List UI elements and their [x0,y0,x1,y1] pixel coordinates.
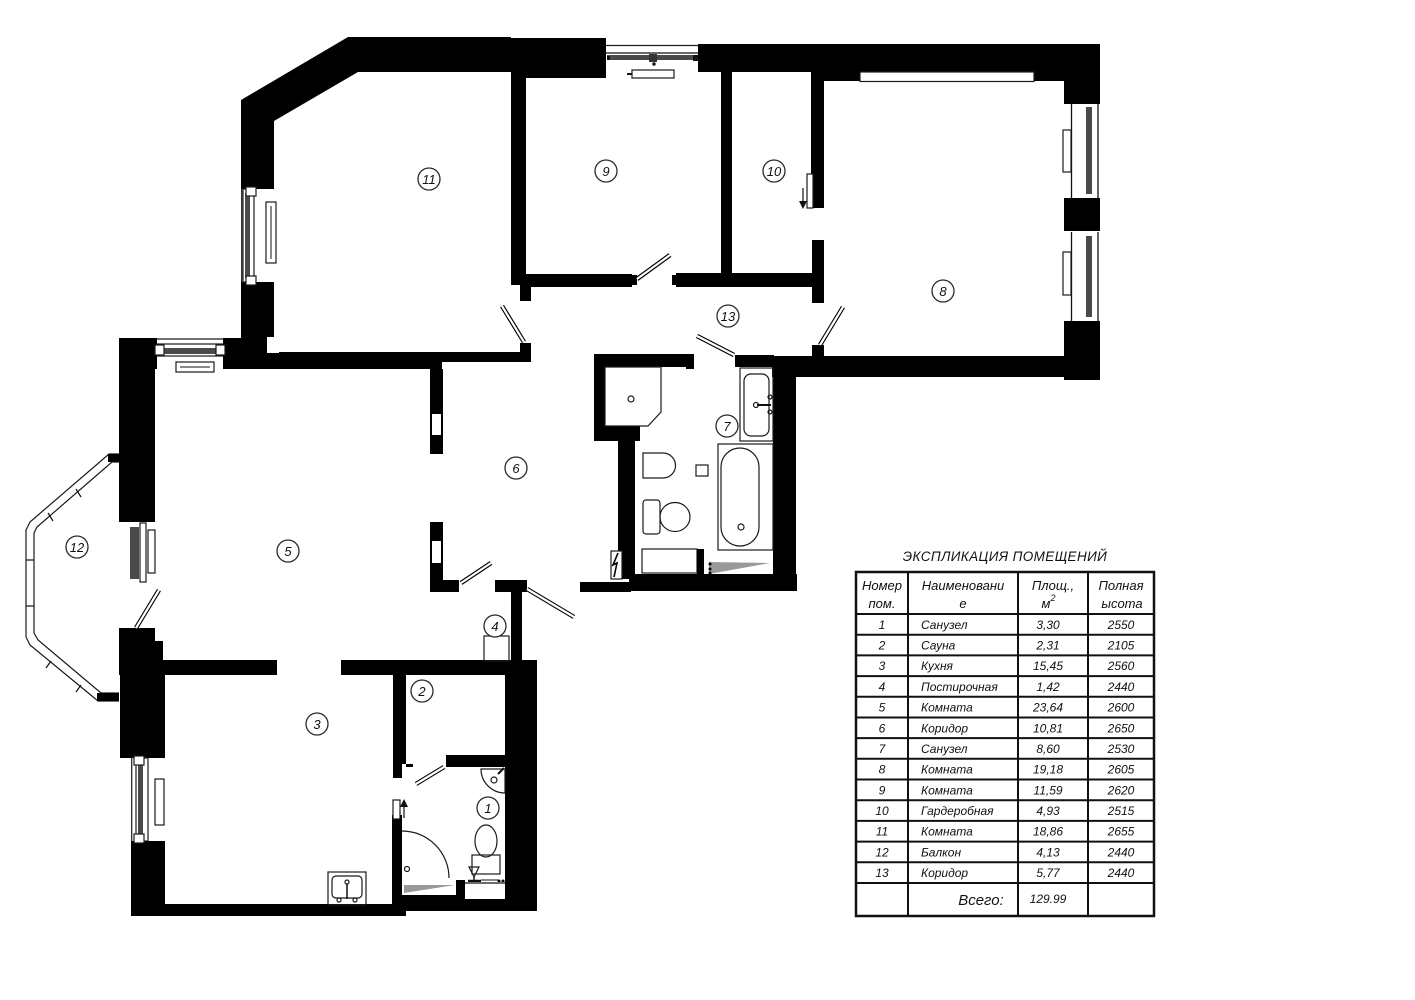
svg-text:15,45: 15,45 [1033,659,1063,673]
svg-text:е: е [959,596,966,611]
svg-text:2440: 2440 [1107,680,1135,694]
svg-text:Комната: Комната [921,763,973,777]
svg-text:4,93: 4,93 [1036,804,1060,818]
svg-text:11: 11 [876,825,888,839]
svg-text:9: 9 [602,164,609,179]
svg-text:1: 1 [484,801,491,816]
svg-text:2515: 2515 [1107,804,1135,818]
svg-text:8: 8 [939,284,947,299]
svg-text:8: 8 [879,763,886,777]
svg-text:ысота: ысота [1101,596,1142,611]
svg-text:2550: 2550 [1107,618,1135,632]
svg-text:5,77: 5,77 [1036,866,1061,880]
svg-text:Площ.,: Площ., [1032,578,1074,593]
svg-text:Санузел: Санузел [921,742,968,756]
svg-text:10: 10 [875,804,889,818]
svg-text:ЭКСПЛИКАЦИЯ ПОМЕЩЕНИЙ: ЭКСПЛИКАЦИЯ ПОМЕЩЕНИЙ [903,548,1107,564]
svg-text:1: 1 [879,618,886,632]
svg-text:Номер: Номер [862,578,902,593]
svg-text:13: 13 [721,309,736,324]
svg-text:11,59: 11,59 [1033,783,1062,797]
svg-text:2605: 2605 [1107,763,1135,777]
svg-text:2600: 2600 [1107,701,1135,715]
svg-text:Комната: Комната [921,825,973,839]
svg-text:2,31: 2,31 [1035,639,1059,653]
svg-text:11: 11 [422,172,436,187]
svg-text:Гардеробная: Гардеробная [921,804,994,818]
svg-text:5: 5 [284,544,292,559]
svg-text:4,13: 4,13 [1036,845,1060,859]
svg-text:12: 12 [875,845,889,859]
svg-text:2530: 2530 [1107,742,1135,756]
svg-text:2655: 2655 [1107,825,1135,839]
svg-text:4: 4 [879,680,886,694]
svg-text:2: 2 [878,639,886,653]
svg-text:Наименовани: Наименовани [922,578,1005,593]
svg-text:9: 9 [879,783,886,797]
svg-text:м: м [1042,596,1051,611]
svg-text:2440: 2440 [1107,866,1135,880]
svg-text:Комната: Комната [921,783,973,797]
svg-text:2: 2 [1049,593,1055,603]
svg-text:3: 3 [313,717,321,732]
svg-text:2440: 2440 [1107,845,1135,859]
svg-text:4: 4 [491,619,498,634]
svg-text:13: 13 [875,866,889,880]
svg-text:Санузел: Санузел [921,618,968,632]
svg-text:Полная: Полная [1098,578,1143,593]
svg-text:Сауна: Сауна [921,639,956,653]
svg-text:3: 3 [879,659,886,673]
svg-text:129.99: 129.99 [1030,892,1067,906]
svg-text:10,81: 10,81 [1033,721,1063,735]
svg-text:2650: 2650 [1107,721,1135,735]
svg-text:8,60: 8,60 [1036,742,1060,756]
svg-text:6: 6 [512,461,520,476]
svg-text:Постирочная: Постирочная [921,680,998,694]
svg-text:Всего:: Всего: [958,892,1004,909]
svg-text:10: 10 [767,164,782,179]
svg-text:19,18: 19,18 [1033,763,1063,777]
svg-text:23,64: 23,64 [1032,701,1063,715]
svg-text:6: 6 [879,721,886,735]
svg-text:Кухня: Кухня [921,659,954,673]
svg-text:2: 2 [417,684,426,699]
svg-text:18,86: 18,86 [1033,825,1063,839]
svg-text:2560: 2560 [1107,659,1135,673]
svg-text:1,42: 1,42 [1036,680,1060,694]
svg-text:5: 5 [879,701,886,715]
svg-text:Балкон: Балкон [921,845,961,859]
svg-text:12: 12 [70,540,85,555]
svg-text:2105: 2105 [1107,639,1135,653]
svg-text:3,30: 3,30 [1036,618,1060,632]
svg-text:пом.: пом. [869,596,896,611]
svg-text:7: 7 [723,419,731,434]
svg-text:Коридор: Коридор [921,866,968,880]
svg-text:Коридор: Коридор [921,721,968,735]
svg-text:Комната: Комната [921,701,973,715]
svg-text:2620: 2620 [1107,783,1135,797]
